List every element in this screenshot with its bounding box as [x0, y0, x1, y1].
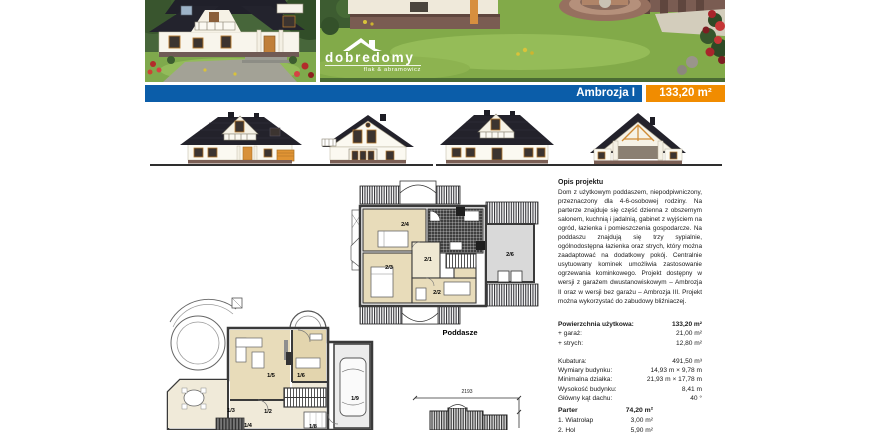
ground-room-label: 1/8 [309, 424, 317, 430]
spec-summary: Powierzchnia użytkowa: 133,20 m² + garaż… [558, 320, 702, 348]
spec-label: + strych: [558, 339, 583, 348]
spec-value: 40 ° [690, 394, 702, 403]
ground-room-label: 1/4 [244, 423, 253, 429]
project-name: Ambrozja I [145, 85, 642, 102]
spec-label: Kubatura: [558, 357, 587, 366]
spec-label: + garaż: [558, 329, 582, 338]
spec-label: Powierzchnia użytkowa: [558, 320, 634, 329]
elevation-front [178, 112, 302, 169]
room-list-ground: Parter 74,20 m² 1. Wiatrołap 3,00 m² 2. … [558, 406, 653, 436]
spec-row: Powierzchnia użytkowa: 133,20 m² [558, 320, 702, 329]
spec-value: 14,93 m × 9,78 m [651, 366, 703, 375]
elevation-rear [438, 110, 556, 169]
spec-value: 133,20 m² [672, 320, 702, 329]
floor-plan-attic: 2/1 2/2 2/3 2/4 2/6 Poddasze [350, 180, 550, 343]
room-area: 3,00 m² [631, 416, 653, 426]
spec-details: Kubatura: 491,50 m³ Wymiary budynku: 14,… [558, 357, 702, 403]
room-name: 1. Wiatrołap [558, 416, 593, 426]
spec-value: 491,50 m³ [672, 357, 702, 366]
brand-tagline: flak & abramowicz [325, 65, 421, 73]
photo-house-render [145, 0, 316, 82]
project-banner: Ambrozja I 133,20 m² [145, 85, 725, 102]
attic-room-label: 2/4 [401, 222, 410, 228]
area-badge: 133,20 m² [646, 85, 725, 102]
spec-row: + garaż: 21,00 m² [558, 329, 702, 338]
spec-row: + strych: 12,80 m² [558, 339, 702, 348]
brand-logo: dobredomy flak & abramowicz [325, 36, 425, 73]
roof-dimension-label: 2193 [461, 389, 472, 395]
floor-total-area: 74,20 m² [626, 406, 653, 416]
description-heading: Opis projektu [558, 179, 702, 187]
ground-room-label: 1/6 [297, 373, 305, 379]
spec-value: 12,80 m² [676, 339, 702, 348]
spec-label: Główny kąt dachu: [558, 394, 612, 403]
spec-label: Minimalna działka: [558, 375, 612, 384]
spec-row: Wymiary budynku: 14,93 m × 9,78 m [558, 366, 702, 375]
photo-garden-render: dobredomy flak & abramowicz [320, 0, 725, 82]
ground-room-label: 1/2 [264, 409, 272, 415]
elevation-side-left [320, 114, 416, 169]
spec-value: 21,93 m × 17,78 m [647, 375, 702, 384]
spec-row: Minimalna działka: 21,93 m × 17,78 m [558, 375, 702, 384]
roof-plan: 2193 [405, 382, 530, 435]
attic-room-label: 2/1 [424, 257, 432, 263]
description-body: Dom z użytkowym poddaszem, niepodpiwnicz… [558, 188, 702, 306]
house-render-image [145, 0, 316, 82]
room-row: 1. Wiatrołap 3,00 m² [558, 416, 653, 426]
floor-name: Parter [558, 406, 578, 416]
room-name: 2. Hol [558, 426, 575, 436]
spec-row: Główny kąt dachu: 40 ° [558, 394, 702, 403]
roof-icon [341, 36, 385, 51]
room-row: 2. Hol 5,90 m² [558, 426, 653, 436]
spec-row: Kubatura: 491,50 m³ [558, 357, 702, 366]
attic-plan-title: Poddasze [442, 328, 477, 337]
ground-room-label: 1/3 [227, 408, 235, 414]
ground-room-label: 1/5 [267, 373, 275, 379]
spec-label: Wysokość budynku: [558, 385, 617, 394]
spec-value: 21,00 m² [676, 329, 702, 338]
attic-room-label: 2/3 [385, 265, 393, 271]
spec-label: Wymiary budynku: [558, 366, 612, 375]
spec-row: Wysokość budynku: 8,41 m [558, 385, 702, 394]
project-description: Opis projektu Dom z użytkowym poddaszem,… [558, 179, 702, 306]
floor-plan-ground: 1/5 1/6 1/9 1/3 1/2 1/4 1/8 [158, 296, 374, 435]
ground-room-label: 1/9 [351, 396, 359, 402]
brand-logo-text: dobredomy [325, 51, 425, 64]
elevation-side-right [590, 112, 686, 169]
room-list-heading-row: Parter 74,20 m² [558, 406, 653, 416]
attic-room-label: 2/2 [433, 290, 441, 296]
attic-room-label: 2/6 [506, 252, 514, 258]
spec-value: 8,41 m [682, 385, 702, 394]
room-area: 5,90 m² [631, 426, 653, 436]
